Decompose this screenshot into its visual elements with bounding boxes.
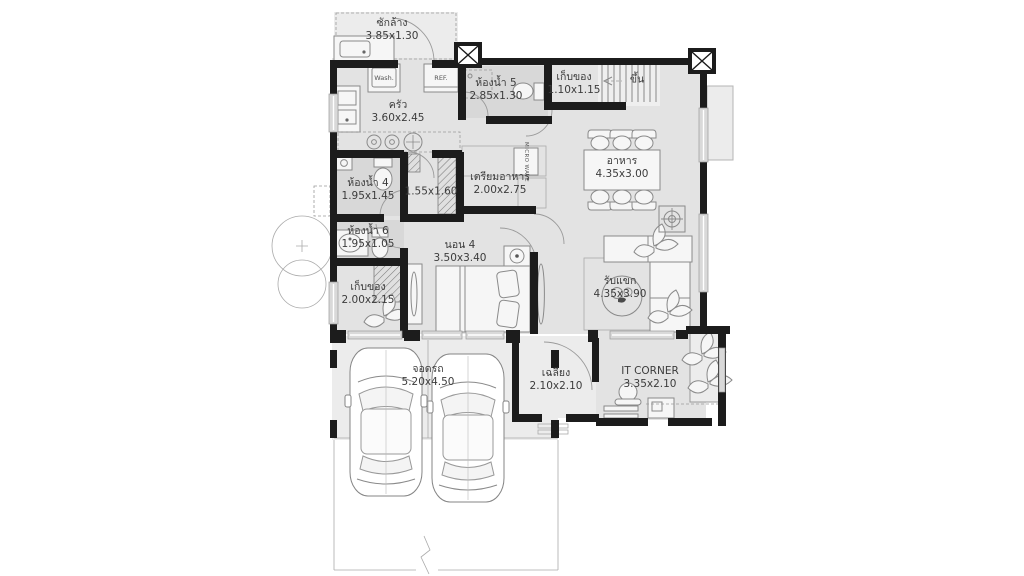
room-label-dining: อาหาร 4.35x3.00 bbox=[596, 155, 649, 181]
room-label-prep: เตรียมอาหาร 2.00x2.75 bbox=[470, 171, 530, 197]
room-label-store-top: เก็บของ 1.10x1.15 bbox=[548, 71, 601, 97]
stairs-label: ขึ้น bbox=[630, 73, 644, 86]
room-label-laundry: ซักล้าง 3.85x1.30 bbox=[366, 17, 419, 43]
room-label-bath6: ห้องน้ำ 6 1.95x1.05 bbox=[342, 225, 395, 251]
column-symbol bbox=[690, 50, 714, 72]
room-label-living: รับแขก 4.35x3.90 bbox=[594, 275, 647, 301]
room-label-parking: จอดรถ 5.20x4.50 bbox=[402, 363, 455, 389]
room-label-bath5: ห้องน้ำ 5 2.85x1.30 bbox=[470, 77, 523, 103]
microwave-label: MICRO WAVE bbox=[523, 142, 529, 182]
room-label-kitchen: ครัว 3.60x2.45 bbox=[372, 99, 425, 125]
room-label-store-mid: เก็บของ 2.00x2.15 bbox=[342, 281, 395, 307]
room-label-bath4: ห้องน้ำ 4 1.95x1.45 bbox=[342, 177, 395, 203]
column-symbol bbox=[456, 44, 480, 66]
room-label-bed4: นอน 4 3.50x3.40 bbox=[434, 239, 487, 265]
toilet bbox=[534, 83, 544, 100]
desk bbox=[604, 406, 638, 411]
fridge-label: REF. bbox=[434, 74, 447, 82]
washer-label: Wash. bbox=[374, 74, 394, 82]
wardrobe bbox=[406, 264, 422, 324]
room-label-it-corner: IT CORNER 3.35x2.10 bbox=[621, 365, 679, 391]
room-label-hall: 1.55x1.60 bbox=[405, 185, 458, 198]
room-label-porch: เฉลียง 2.10x2.10 bbox=[530, 367, 583, 393]
floor-plan: ซักล้าง 3.85x1.30 ครัว 3.60x2.45 ห้องน้ำ… bbox=[0, 0, 1024, 576]
water-tanks bbox=[272, 186, 332, 308]
